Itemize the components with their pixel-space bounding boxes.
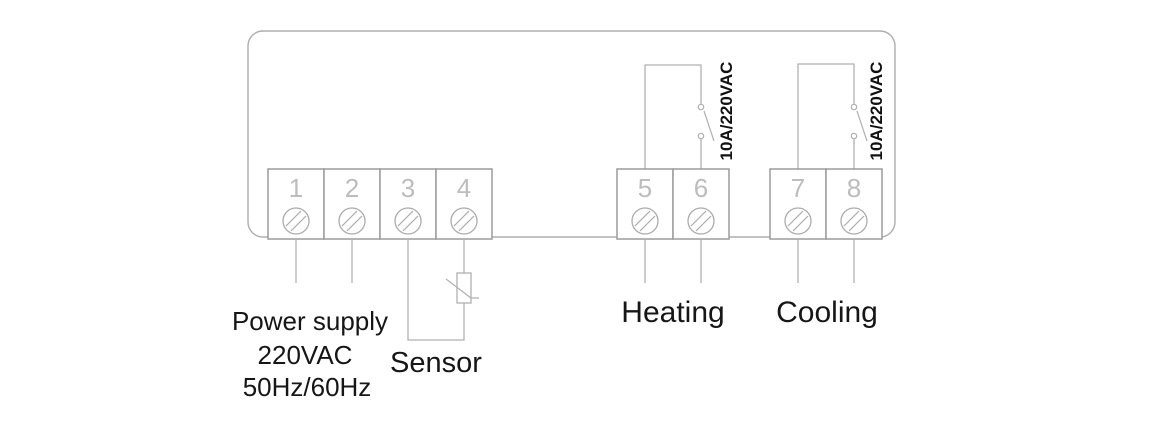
- terminal-5: 5: [617, 169, 673, 239]
- relay-2-switch-blade-icon: [857, 111, 867, 141]
- wiring-diagram-canvas: 10A/220VAC 10A/220VAC 1 2: [0, 0, 1170, 440]
- terminal-8-number: 8: [847, 173, 861, 203]
- terminal-1-number: 1: [289, 173, 303, 203]
- screw-icon: [339, 208, 365, 234]
- terminal-2: 2: [324, 169, 380, 239]
- terminal-7-number: 7: [791, 173, 805, 203]
- terminal-1: 1: [268, 169, 324, 239]
- relay-2-lower-contact-icon: [851, 133, 856, 138]
- relay-2-upper-contact-icon: [851, 104, 856, 109]
- screw-icon: [688, 208, 714, 234]
- terminal-5-number: 5: [638, 173, 652, 203]
- screw-icon: [451, 208, 477, 234]
- terminal-4: 4: [436, 169, 492, 239]
- relay-1-wire: [645, 65, 701, 169]
- terminal-6-number: 6: [694, 173, 708, 203]
- power-supply-label-line3: 50Hz/60Hz: [243, 372, 372, 402]
- screw-icon: [283, 208, 309, 234]
- screw-icon: [632, 208, 658, 234]
- relay-1-switch-blade-icon: [704, 111, 714, 141]
- sensor-loop: [408, 239, 479, 340]
- sensor-wire: [408, 239, 464, 340]
- terminal-block-heating: 5 6: [617, 169, 729, 239]
- screw-icon: [395, 208, 421, 234]
- relay-2-cooling: 10A/220VAC: [798, 62, 886, 169]
- sensor-label: Sensor: [390, 347, 482, 379]
- relay-1-rating-label: 10A/220VAC: [717, 62, 736, 161]
- terminal-3: 3: [380, 169, 436, 239]
- screw-icon: [841, 208, 867, 234]
- terminal-3-number: 3: [401, 173, 415, 203]
- relay-1-upper-contact-icon: [698, 104, 703, 109]
- terminal-block-power-sensor: 1 2 3 4: [268, 169, 492, 239]
- terminal-8: 8: [826, 169, 882, 239]
- power-supply-label-line2: 220VAC: [258, 340, 353, 370]
- heating-label: Heating: [621, 296, 724, 329]
- relay-1-lower-contact-icon: [698, 133, 703, 138]
- power-supply-label-line1: Power supply: [232, 306, 388, 336]
- wiring-diagram-svg: 10A/220VAC 10A/220VAC 1 2: [0, 0, 1170, 440]
- terminal-6: 6: [673, 169, 729, 239]
- screw-icon: [785, 208, 811, 234]
- terminal-4-number: 4: [457, 173, 471, 203]
- terminal-7: 7: [770, 169, 826, 239]
- cooling-label: Cooling: [776, 296, 878, 329]
- relay-2-rating-label: 10A/220VAC: [867, 62, 886, 161]
- thermistor-icon: [457, 273, 471, 303]
- relay-2-wire: [798, 64, 854, 169]
- relay-1-heating: 10A/220VAC: [645, 62, 736, 169]
- terminal-2-number: 2: [345, 173, 359, 203]
- terminal-block-cooling: 7 8: [770, 169, 882, 239]
